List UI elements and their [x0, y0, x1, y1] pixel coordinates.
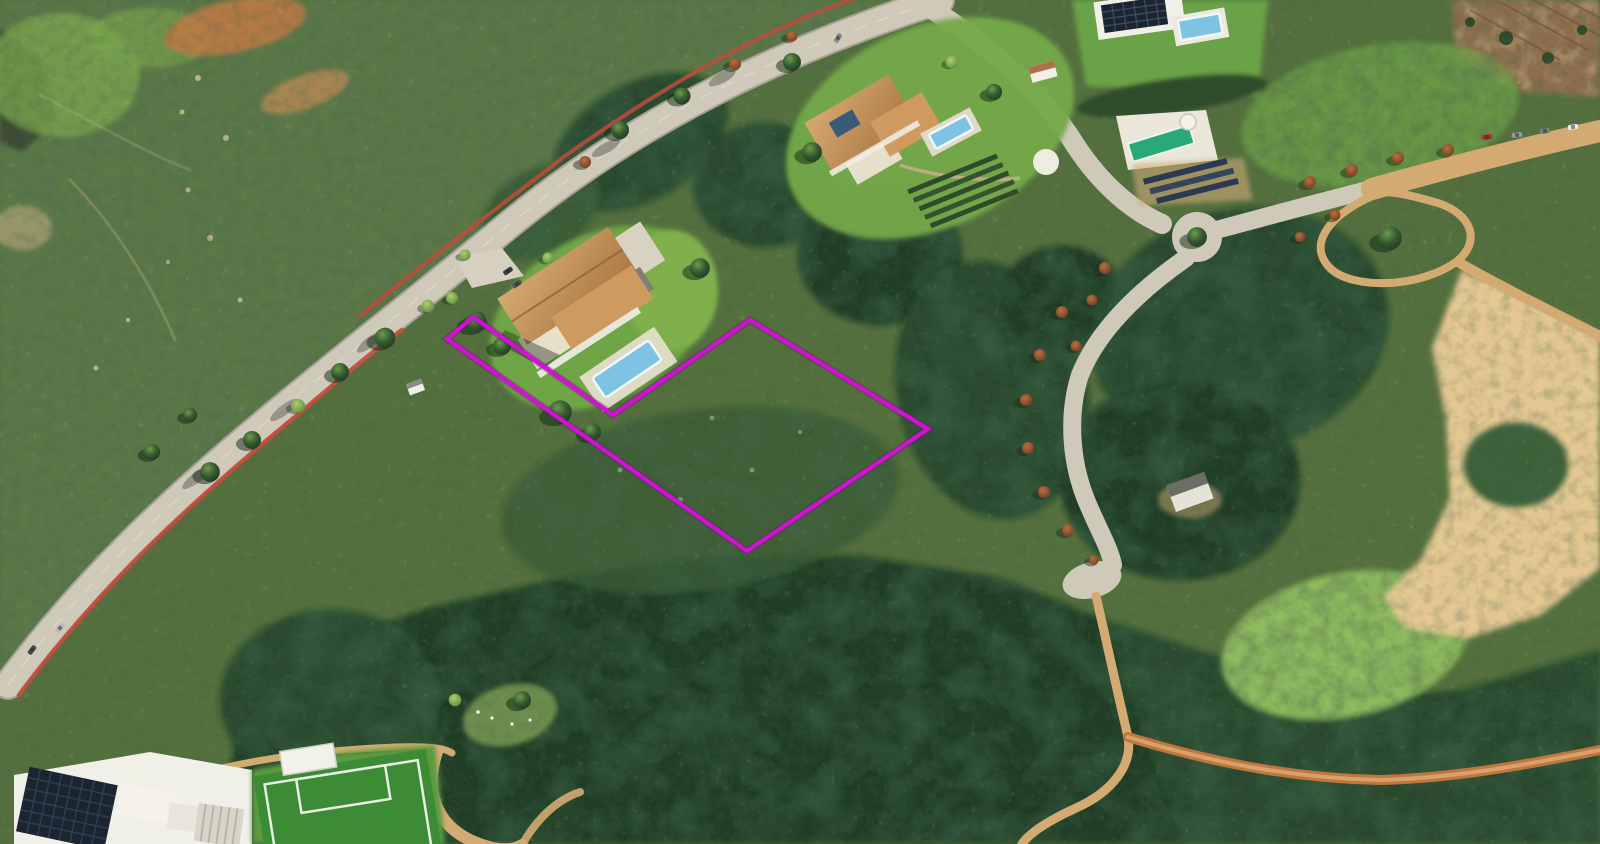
- round-patio: [1033, 149, 1059, 175]
- round-structure: [1180, 114, 1196, 130]
- ribbed-roof: [194, 803, 245, 844]
- aerial-photo: [0, 0, 1600, 844]
- aerial-photo-canvas: [0, 0, 1600, 844]
